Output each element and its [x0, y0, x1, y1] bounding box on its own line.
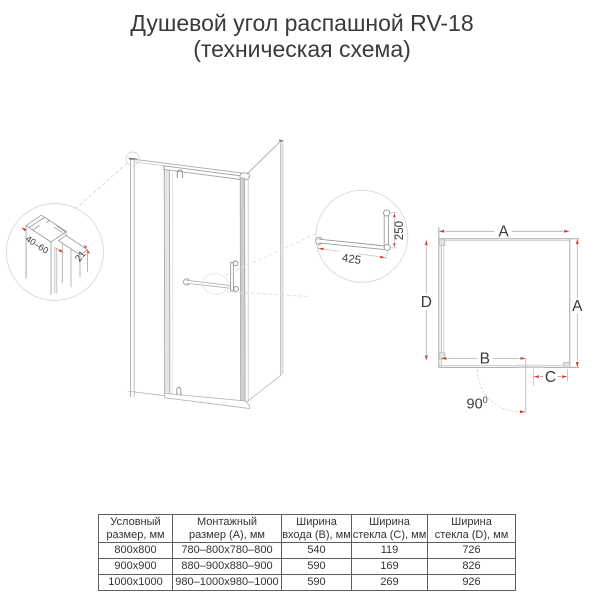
- svg-text:C: C: [545, 369, 556, 386]
- svg-text:A: A: [498, 224, 509, 241]
- svg-text:250: 250: [394, 221, 406, 240]
- svg-text:D: D: [421, 294, 432, 311]
- svg-text:900: 900: [467, 395, 488, 412]
- svg-text:A: A: [572, 298, 583, 315]
- svg-text:425: 425: [341, 252, 362, 267]
- svg-text:B: B: [480, 351, 490, 368]
